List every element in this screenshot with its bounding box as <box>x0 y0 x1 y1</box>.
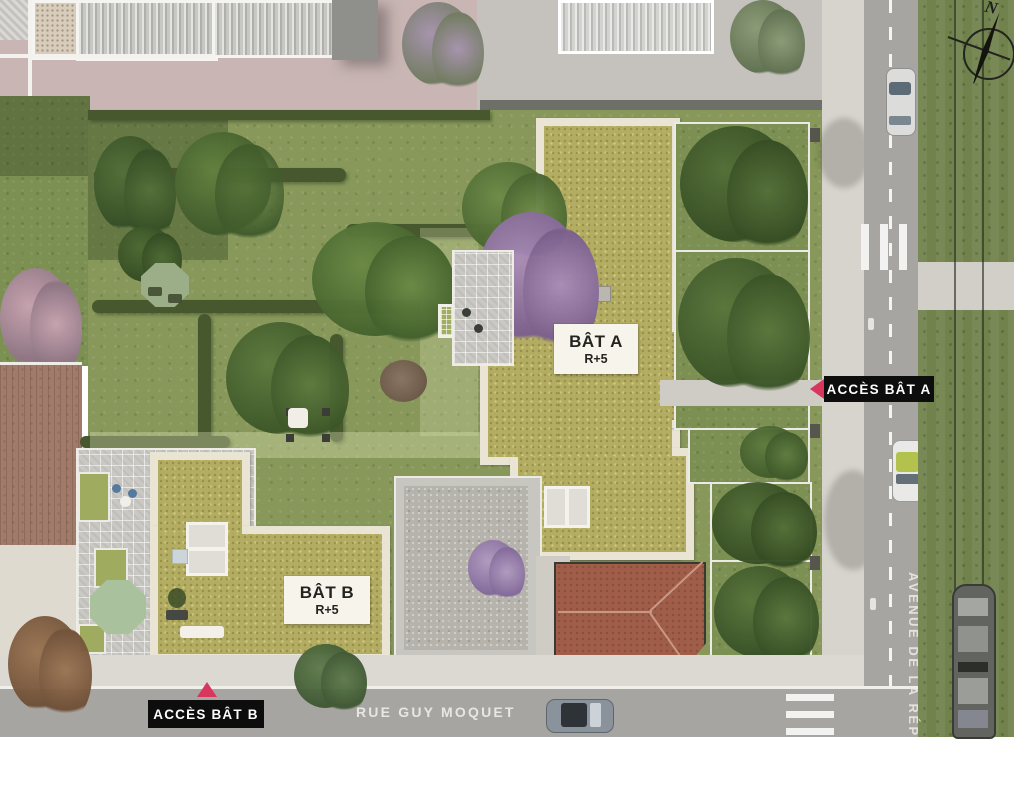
street-name-rue-guy-moquet: RUE GUY MOQUET <box>356 704 516 720</box>
tree <box>94 136 166 232</box>
paving-joint <box>0 54 215 58</box>
tree <box>712 482 804 564</box>
car-windshield <box>896 474 919 484</box>
bat-a-name: BÂT A <box>554 332 638 352</box>
compass-circle <box>963 28 1014 80</box>
car-roof <box>561 703 587 727</box>
tree-shadow <box>818 118 870 188</box>
dirt-circle <box>380 360 427 402</box>
skylight <box>172 549 188 564</box>
autumn-tree <box>8 616 82 712</box>
acces-bat-b-arrow-icon <box>197 682 217 697</box>
neighbour-roof <box>558 0 714 54</box>
dining-table <box>180 626 224 638</box>
bat-a-floors: R+5 <box>554 352 638 366</box>
picnic-table <box>288 408 308 428</box>
bat-b-floors: R+5 <box>284 603 370 617</box>
tree <box>294 644 358 708</box>
neighbour-roof-dark <box>332 0 378 60</box>
table <box>120 496 131 507</box>
neighbour-roof <box>212 0 338 58</box>
roof-ridge <box>558 611 652 613</box>
planter <box>78 472 110 522</box>
hedge <box>88 110 490 120</box>
skylight <box>186 522 228 576</box>
tree <box>175 132 271 236</box>
acces-bat-b-label: ACCÈS BÂT B <box>148 700 264 728</box>
car-windshield <box>590 703 601 727</box>
tree <box>402 2 474 86</box>
boundary-post <box>810 556 820 570</box>
gravel-roof <box>32 0 80 60</box>
tram-roof-panel <box>958 626 988 652</box>
tree <box>714 566 806 658</box>
sidewalk-east <box>822 0 866 690</box>
deck-chair <box>462 308 471 317</box>
car-hood <box>896 452 919 472</box>
tram-roof-panel <box>958 662 988 672</box>
acces-bat-a-label: ACCÈS BÂT A <box>824 376 934 402</box>
blossom-tree <box>0 268 72 368</box>
tram-roof-panel <box>958 598 988 616</box>
hedge <box>198 314 211 442</box>
tree <box>226 322 334 434</box>
skylight <box>544 486 590 528</box>
acces-bat-b-text: ACCÈS BÂT B <box>153 707 258 722</box>
car-rear-window <box>889 116 911 125</box>
road-marking <box>868 318 874 330</box>
boundary-post <box>810 424 820 438</box>
tram-roof-panel <box>958 710 988 728</box>
lilac-tree <box>468 540 518 596</box>
car-windshield <box>889 82 911 95</box>
compass-icon: N <box>944 0 1014 90</box>
corner-roof <box>0 0 30 40</box>
neighbour-roof-brown <box>0 362 82 550</box>
bat-a-label: BÂT A R+5 <box>554 324 638 374</box>
tree <box>740 426 800 478</box>
acces-bat-a-arrow-icon <box>810 379 824 399</box>
tree <box>678 258 794 388</box>
deck <box>452 250 514 366</box>
road-marking <box>870 598 876 610</box>
acces-bat-a-text: ACCÈS BÂT A <box>827 382 932 397</box>
plant <box>168 588 186 608</box>
compass-north-letter: N <box>983 0 1000 19</box>
car <box>886 68 916 136</box>
deck-chair <box>474 324 483 333</box>
tree <box>680 126 792 242</box>
sidewalk-south <box>0 655 864 690</box>
tram-roof-panel <box>958 678 988 704</box>
tree <box>312 222 438 336</box>
lounger <box>148 287 162 296</box>
street-name-avenue-republique: AVENUE DE LA RÉPUB <box>905 572 921 735</box>
bat-b-name: BÂT B <box>284 583 370 603</box>
bat-b-label: BÂT B R+5 <box>284 576 370 624</box>
neighbour-roof <box>76 0 218 61</box>
crosswalk <box>861 224 911 270</box>
lounger <box>168 294 182 303</box>
boundary-post <box>810 128 820 142</box>
tram-crossing <box>918 262 1014 310</box>
crosswalk <box>786 694 834 736</box>
bench <box>166 610 188 620</box>
neighbour-garden-shade <box>0 96 90 176</box>
site-plan: BÂT A R+5 BÂT B R+5 ACCÈS BÂT A ACCÈS BÂ… <box>0 0 1014 800</box>
chair <box>112 484 121 493</box>
tree <box>730 0 796 74</box>
